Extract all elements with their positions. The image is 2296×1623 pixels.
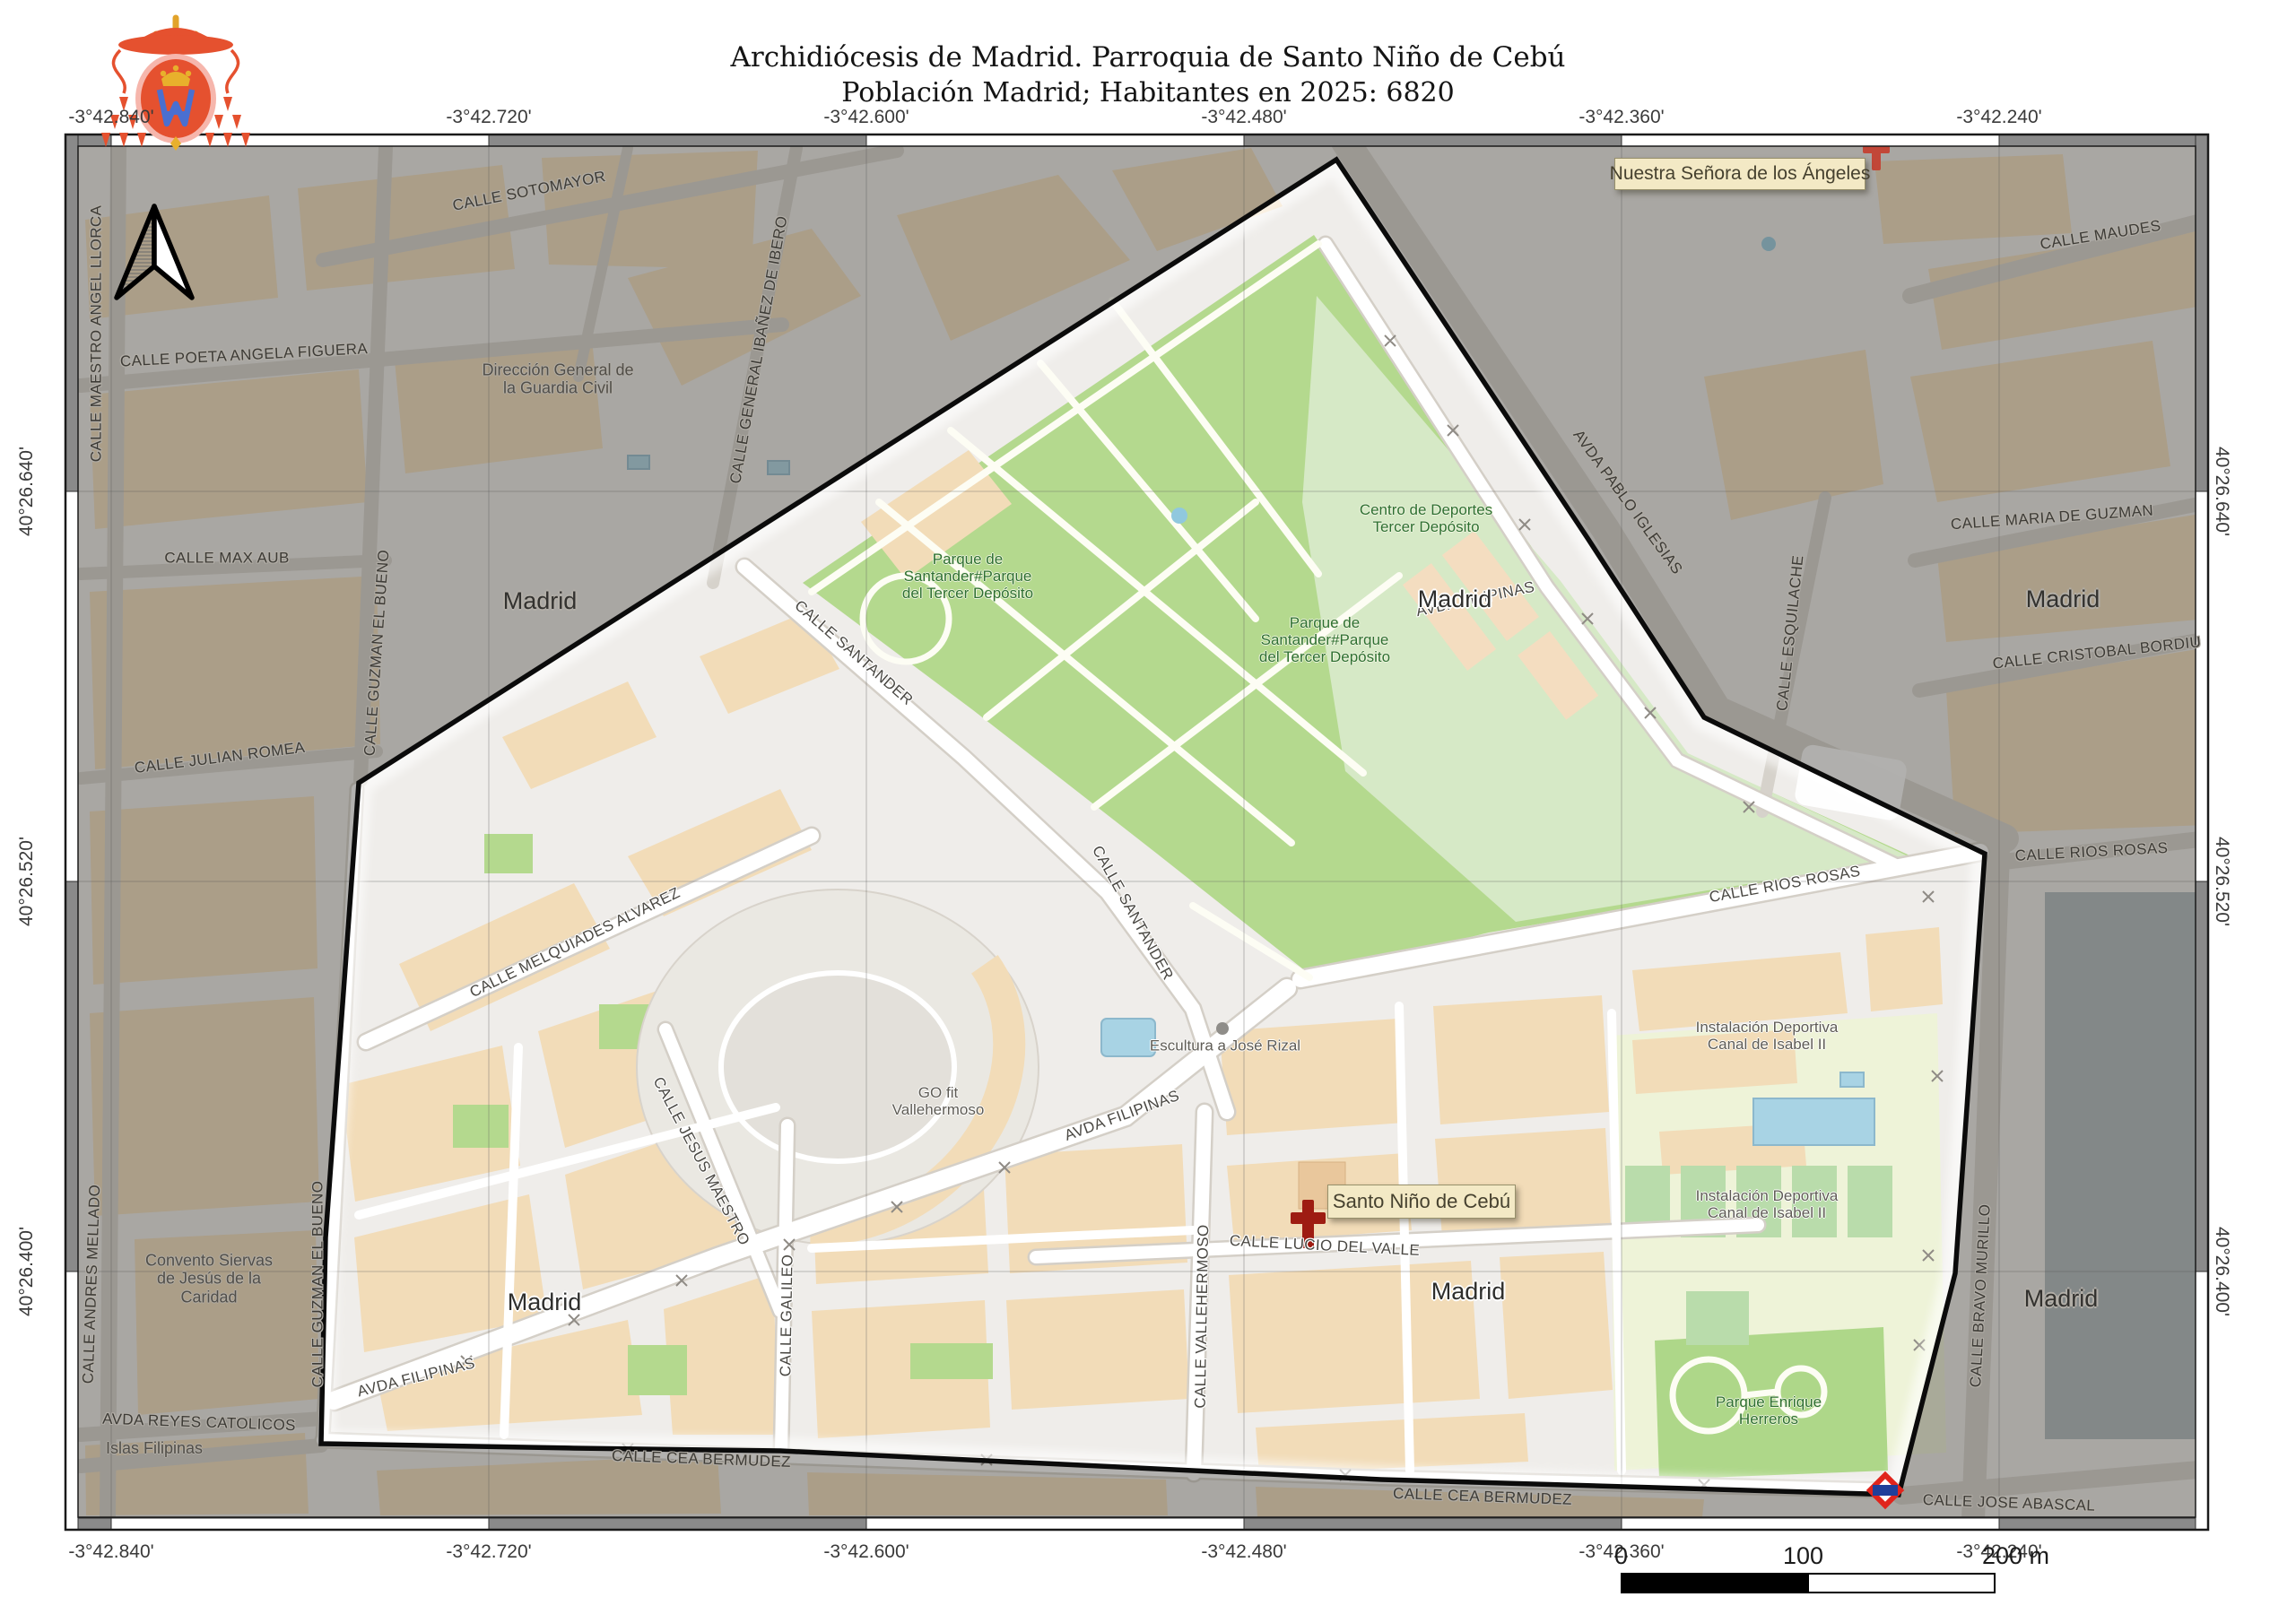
- lon-label-top: -3°42.840': [68, 107, 153, 128]
- lon-label-bottom: -3°42.480': [1201, 1541, 1286, 1563]
- lat-label-right: 40°26.640': [2211, 447, 2232, 536]
- lat-label-left: 40°26.400': [16, 1227, 38, 1316]
- lat-label-left: 40°26.520': [16, 837, 38, 926]
- lon-label-top: -3°42.240': [1956, 107, 2041, 128]
- parque-enrique-herreros: [1655, 1327, 1888, 1480]
- lon-label-top: -3°42.720': [446, 107, 531, 128]
- lat-label-right: 40°26.520': [2211, 837, 2232, 926]
- lat-label-left: 40°26.640': [16, 447, 38, 536]
- callout-santo-nino: Santo Niño de Cebú: [1327, 1185, 1516, 1219]
- lon-label-top: -3°42.360': [1578, 107, 1664, 128]
- map-canvas: [0, 0, 2296, 1623]
- scalebar-end: 200 m: [1982, 1542, 2049, 1570]
- lon-label-bottom: -3°42.840': [68, 1541, 153, 1563]
- lat-label-right: 40°26.400': [2211, 1227, 2232, 1316]
- map-base: [78, 135, 2208, 1520]
- scalebar-mid: 100: [1783, 1542, 1823, 1570]
- title-line-1: Archidiócesis de Madrid. Parroquia de Sa…: [0, 39, 2296, 75]
- scale-bar: [1622, 1574, 1995, 1593]
- map-export-page: { "title": { "line1": "Archidiócesis de …: [0, 0, 2296, 1623]
- lon-label-bottom: -3°42.720': [446, 1541, 531, 1563]
- map-title: Archidiócesis de Madrid. Parroquia de Sa…: [0, 39, 2296, 111]
- lon-label-bottom: -3°42.600': [823, 1541, 909, 1563]
- sculpture-dot: [1216, 1022, 1229, 1035]
- scalebar-zero: 0: [1614, 1542, 1628, 1570]
- callout-nuestra-senora: Nuestra Señora de los Ángeles: [1614, 158, 1865, 190]
- title-line-2: Población Madrid; Habitantes en 2025: 68…: [0, 75, 2296, 111]
- lon-label-top: -3°42.600': [823, 107, 909, 128]
- lon-label-top: -3°42.480': [1201, 107, 1286, 128]
